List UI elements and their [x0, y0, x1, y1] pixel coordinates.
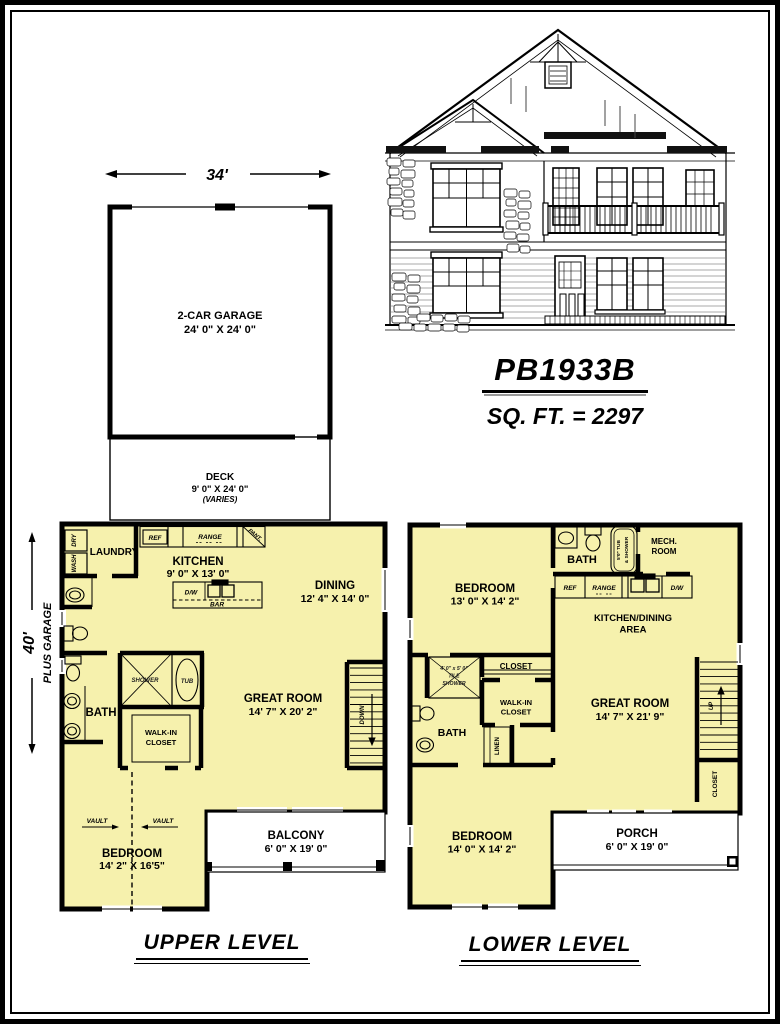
plan-number: PB1933B: [482, 352, 647, 393]
stair-closet-label: CLOSET: [712, 771, 719, 797]
lower-bedroom2-label: BEDROOM: [452, 831, 512, 843]
balcony-label: BALCONY: [268, 830, 325, 842]
upper-level-heading: UPPER LEVEL: [118, 931, 326, 960]
dryer-label: DRY: [72, 533, 78, 547]
lower-fridge-label: REF: [564, 585, 578, 592]
balcony-railing: [543, 203, 724, 235]
upper-level-plan: 40' PLUS GARAGE DRY WASH: [15, 510, 400, 920]
garage-deck-plan: 34' 2-CAR GARAGE 24' 0" X 24' 0" DECK 9'…: [20, 160, 380, 525]
lower-range-label: RANGE: [592, 585, 616, 592]
house-elevation: [383, 20, 748, 342]
dining-dims: 12' 4" X 14' 0": [301, 593, 370, 605]
deco-window: [686, 170, 714, 206]
washer-label: WASH: [72, 554, 78, 573]
closet-label: CLOSET: [500, 662, 533, 671]
tile-shower-line2: TILE: [448, 674, 460, 680]
vault-label-right: VAULT: [153, 818, 175, 825]
lower-wic-line1: WALK-IN: [500, 698, 532, 707]
lower-level-heading-text: LOWER LEVEL: [461, 933, 640, 962]
deck-note: (VARIES): [203, 495, 238, 504]
lower-bath1-label: BATH: [567, 554, 597, 566]
width-dimension: 34': [105, 167, 331, 184]
kitchen-dining-line2: AREA: [620, 625, 647, 636]
attic-vent: [545, 62, 571, 88]
brick-skirt: [545, 316, 725, 324]
porch-dims: 6' 0" X 19' 0": [606, 841, 669, 853]
front-door: [555, 256, 585, 322]
mech-room-line1: MECH.: [651, 537, 677, 546]
linen-label: LINEN: [495, 737, 501, 755]
upper-great-room-dims: 14' 7" X 20' 2": [249, 706, 318, 718]
plan-height-note: PLUS GARAGE: [42, 602, 54, 683]
height-dimension: 40' PLUS GARAGE: [21, 532, 54, 754]
window-1f-right: [595, 258, 665, 314]
upper-kitchen-dims: 9' 0" X 13' 0": [167, 568, 230, 580]
lower-dishwasher-label: D/W: [671, 585, 685, 592]
lower-level-heading: LOWER LEVEL: [446, 933, 654, 962]
elevation-walls: [385, 153, 735, 330]
elevation-roof: [385, 30, 735, 161]
lower-great-room-label: GREAT ROOM: [591, 698, 669, 710]
tile-shower-line1: 4' 0" x 5' 0": [439, 666, 468, 672]
upper-fridge-label: REF: [149, 535, 163, 542]
square-footage: SQ. FT. = 2297: [425, 403, 705, 430]
balcony-dims: 6' 0" X 19' 0": [265, 843, 328, 855]
lower-wic-line2: CLOSET: [501, 708, 532, 717]
stairs-down-label: DOWN: [360, 705, 366, 725]
deck-dims: 9' 0" X 24' 0": [192, 484, 249, 495]
upper-kitchen-label: KITCHEN: [172, 556, 223, 568]
upper-wic-line1: WALK-IN: [145, 728, 177, 737]
stairs-up-label: UP: [709, 701, 715, 710]
laundry-label: LAUNDRY: [90, 547, 139, 558]
garage-label: 2-CAR GARAGE: [178, 310, 263, 322]
porch-label: PORCH: [616, 828, 658, 840]
dining-label: DINING: [315, 580, 355, 592]
lower-level-plan: 5'0" TUB & SHOWER REF RANGE D/W 4' 0" x …: [400, 510, 755, 910]
tub-shower-line2: & SHOWER: [624, 536, 630, 563]
lower-great-room-dims: 14' 7" X 21' 9": [596, 711, 665, 723]
floor-plan-sheet: { "colors": { "room_fill": "#F6F1AD", "w…: [0, 0, 780, 1024]
lower-bedroom2-dims: 14' 0" X 14' 2": [448, 844, 517, 856]
deck-label: DECK: [206, 472, 235, 483]
vault-label-left: VAULT: [87, 818, 109, 825]
dishwasher-label: D/W: [185, 590, 199, 597]
lower-bath2-label: BATH: [438, 727, 466, 739]
mech-room-line2: ROOM: [652, 547, 677, 556]
upper-bedroom-label: BEDROOM: [102, 848, 162, 860]
shower-label: SHOWER: [132, 678, 160, 684]
plan-height-dim: 40': [21, 631, 38, 655]
window-2f-left: [430, 163, 503, 232]
bar-label: BAR: [210, 602, 224, 609]
upper-level-heading-text: UPPER LEVEL: [136, 931, 309, 960]
upper-range-label: RANGE: [198, 534, 222, 541]
kitchen-dining-line1: KITCHEN/DINING: [594, 613, 672, 624]
tile-shower-line3: SHOWER: [442, 681, 466, 687]
garage-dims: 24' 0" X 24' 0": [184, 324, 256, 336]
upper-wic-line2: CLOSET: [146, 738, 177, 747]
upper-bedroom-dims: 14' 2" X 16'5": [99, 860, 165, 872]
upper-bath-label: BATH: [85, 707, 116, 719]
upper-balcony: [205, 812, 385, 872]
lower-bedroom1-label: BEDROOM: [455, 583, 515, 595]
tub-shower-line1: 5'0" TUB: [616, 539, 622, 559]
upper-great-room-label: GREAT ROOM: [244, 693, 322, 705]
garage-width-dim: 34': [206, 167, 229, 184]
title-block: PB1933B SQ. FT. = 2297: [425, 352, 705, 430]
window-1f-left: [430, 252, 503, 318]
garage-outline: [110, 204, 330, 441]
gable-shading: [511, 78, 635, 138]
tub-label: TUB: [181, 679, 194, 685]
lower-bedroom1-dims: 13' 0" X 14' 2": [451, 596, 520, 608]
